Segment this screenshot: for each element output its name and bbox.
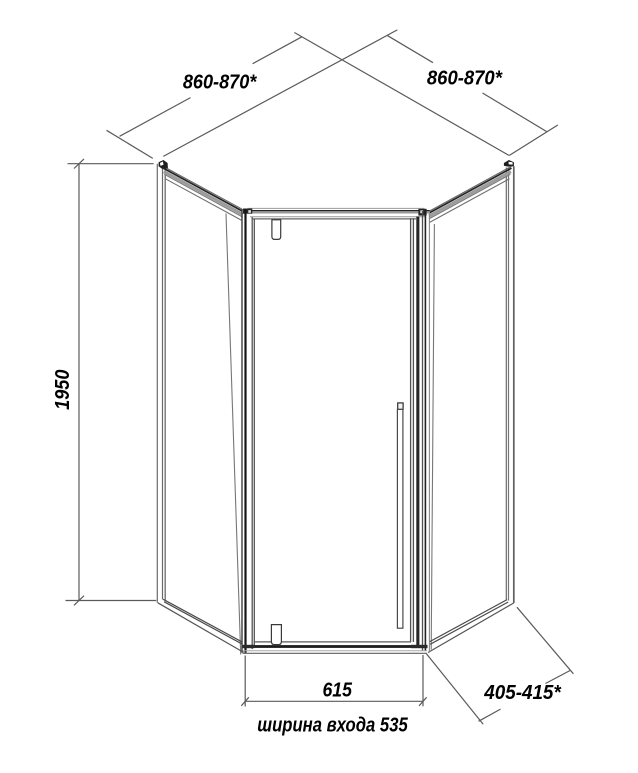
svg-text:1950: 1950 [51, 369, 74, 410]
svg-text:615: 615 [322, 678, 352, 701]
svg-text:860-870*: 860-870* [427, 66, 503, 89]
svg-text:ширина входа 535: ширина входа 535 [257, 714, 408, 737]
svg-text:860-870*: 860-870* [183, 70, 257, 93]
svg-text:405-415*: 405-415* [483, 681, 561, 704]
